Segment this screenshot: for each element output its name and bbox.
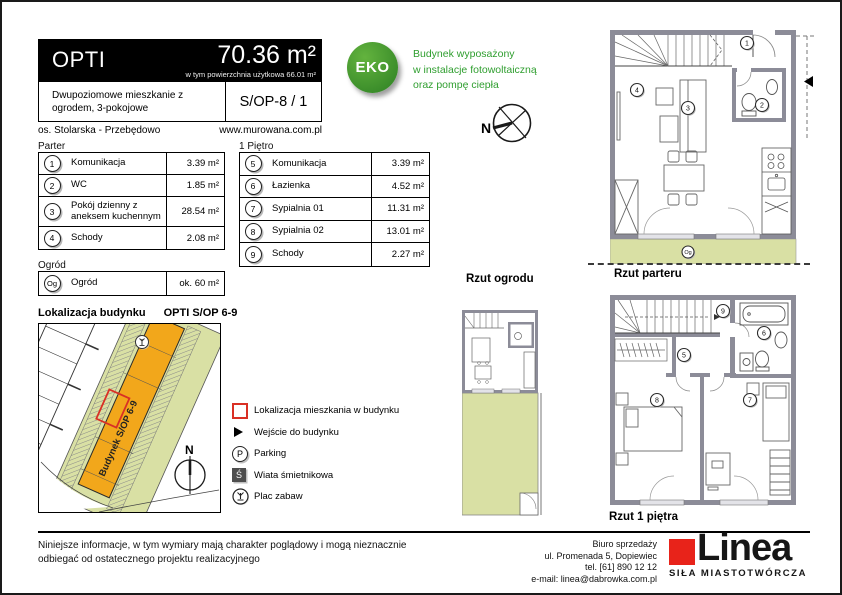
room-name: Pokój dzienny z aneksem kuchennym [65,201,166,222]
usable-area-note: w tym powierzchnia użytkowa 66.01 m² [186,70,316,79]
ogrod-table: Og Ogród ok. 60 m² [38,271,225,296]
room-marker: 2 [760,102,764,109]
room-number-badge: 4 [44,230,61,247]
apartment-type-name: OPTI [52,47,105,73]
legend-label: Lokalizacja mieszkania w budynku [254,405,399,416]
site-plan-subtitle: OPTI S/OP 6-9 [164,307,238,319]
room-number-badge: Og [44,275,61,292]
contact-line: ul. Promenada 5, Dopiewiec [432,551,657,563]
ogrod-table-title: Ogród [38,260,66,271]
room-number-badge: 3 [44,203,61,220]
window [640,500,684,505]
site-plan-map: Budynek S/OP 6-9 N [38,323,221,513]
disclaimer-line: Niniejsze informacje, w tym wymiary mają… [38,539,406,553]
room-area: ok. 60 m² [166,272,224,295]
room-area: 11.31 m² [371,198,429,220]
footer-divider [38,531,810,533]
room-area: 13.01 m² [371,221,429,243]
room-name: Sypialnia 01 [266,204,371,215]
room-area: 2.27 m² [371,243,429,266]
section-cut-line [588,263,810,265]
table-row: 5 Komunikacja 3.39 m² [240,153,429,176]
table-row: 2 WC 1.85 m² [39,175,224,197]
apartment-description: Dwupoziomowe mieszkanie z ogrodem, 3-pok… [39,82,226,121]
linea-logo-red-square [669,539,695,565]
wc-room [732,68,786,122]
table-row: 6 Łazienka 4.52 m² [240,176,429,199]
eko-badge-label: EKO [355,59,389,76]
room-marker: 9 [721,308,725,315]
room-area: 2.08 m² [166,227,224,249]
table-row: 8 Sypialnia 02 13.01 m² [240,221,429,244]
compass-n-label: N [481,120,491,136]
legend-label: Parking [254,448,286,459]
table-row: 7 Sypialnia 01 11.31 m² [240,198,429,221]
compass-n-label: N [185,443,194,457]
parter-table: 1 Komunikacja 3.39 m² 2 WC 1.85 m² 3 Pok… [38,152,225,250]
table-row: Og Ogród ok. 60 m² [39,272,224,295]
garden-strip [610,239,796,264]
trash-shed-icon: Ś [232,468,246,482]
first-floor-plan: 9 6 5 8 7 [610,295,800,507]
legend-item: Lokalizacja mieszkania w budynku [232,400,422,422]
pietro-table: 5 Komunikacja 3.39 m² 6 Łazienka 4.52 m²… [239,152,430,267]
eco-line: w instalacje fotowoltaiczną [413,63,537,79]
room-marker: 8 [655,397,659,404]
garden-marker: Og [684,250,691,256]
room-name: Schody [65,233,166,244]
room-area: 3.39 m² [371,153,429,175]
ground-floor-plan: 1 2 3 4 Og [610,30,814,264]
room-area: 3.39 m² [166,153,224,174]
website-url: www.murowana.com.pl [219,125,322,136]
legend-label: Plac zabaw [254,491,303,502]
compass-site: N [175,443,205,494]
map-legend: Lokalizacja mieszkania w budynku Wejście… [232,400,422,508]
legend-label: Wiata śmietnikowa [254,470,333,481]
parter-table-title: Parter [38,141,65,152]
table-row: 9 Schody 2.27 m² [240,243,429,266]
room-marker: 3 [686,105,690,112]
table-row: 1 Komunikacja 3.39 m² [39,153,224,175]
legend-label: Wejście do budynku [254,427,339,438]
window [716,234,760,239]
entrance-arrow-icon [234,427,243,437]
estate-location: os. Stolarska - Przebędowo [38,125,160,136]
room-name: Schody [266,249,371,260]
room-name: Komunikacja [266,159,371,170]
legend-item: Ś Wiata śmietnikowa [232,465,422,487]
header-meta-row: os. Stolarska - Przebędowo www.murowana.… [38,125,322,136]
contact-phone: tel. [61] 890 12 12 [432,562,657,574]
unit-code: S/OP-8 / 1 [226,82,321,121]
garden-plan-title: Rzut ogrodu [466,273,534,285]
legend-item: Plac zabaw [232,486,422,508]
room-number-badge: 1 [44,155,61,172]
room-number-badge: 9 [245,246,262,263]
playground-icon [136,336,150,350]
playground-icon [232,488,250,506]
linea-logo-wordmark: Linea [697,529,791,567]
eko-badge: EKO [347,42,398,93]
eco-line: Budynek wyposażony [413,47,537,63]
window [502,389,520,393]
pietro-table-title: 1 Piętro [239,141,273,152]
room-name: Komunikacja [65,158,166,169]
room-number-badge: 2 [44,177,61,194]
room-name: WC [65,180,166,191]
ground-plan-title: Rzut parteru [614,268,682,280]
first-floor-plan-title: Rzut 1 piętra [609,511,678,523]
window [720,500,768,505]
kitchen [762,148,791,234]
table-row: 3 Pokój dzienny z aneksem kuchennym 28.5… [39,197,224,227]
contact-email: e-mail: linea@dabrowka.com.pl [432,574,657,586]
room-marker: 1 [745,40,749,47]
room-marker: 6 [762,330,766,337]
room-marker: 4 [635,87,639,94]
linea-logo-tagline: SIŁA MIASTOTWÓRCZA [669,568,811,579]
sales-office-contact: Biuro sprzedaży ul. Promenada 5, Dopiewi… [432,539,657,585]
flyer-sheet: OPTI 70.36 m² w tym powierzchnia użytkow… [0,0,842,595]
room-number-badge: 5 [245,155,262,172]
room-marker: 5 [682,352,686,359]
parking-icon: P [232,446,248,462]
room-area: 4.52 m² [371,176,429,198]
legend-item: P Parking [232,443,422,465]
room-area: 28.54 m² [166,197,224,226]
header-black-box: OPTI 70.36 m² w tym powierzchnia użytkow… [38,39,322,81]
compass-header: N [475,98,537,150]
room-number-badge: 8 [245,223,262,240]
window [638,234,694,239]
room-name: Sypialnia 02 [266,226,371,237]
site-plan-title-text: Lokalizacja budynku [38,307,146,319]
room-number-badge: 7 [245,200,262,217]
room-marker: 7 [748,397,752,404]
room-number-badge: 6 [245,178,262,195]
room-area: 1.85 m² [166,175,224,196]
legend-item: Wejście do budynku [232,422,422,444]
site-plan-drawing: Budynek S/OP 6-9 N [39,324,220,512]
total-area: 70.36 m² [217,41,316,70]
room-name: Ogród [65,278,166,289]
table-row: 4 Schody 2.08 m² [39,227,224,249]
eco-description: Budynek wyposażony w instalacje fotowolt… [413,47,537,94]
contact-line: Biuro sprzedaży [432,539,657,551]
entrance-arrow [804,76,813,87]
garden-plan-drawing [462,310,542,517]
garden-plan-building [462,310,538,393]
eco-line: oraz pompę ciepła [413,78,537,94]
footer-disclaimer: Niniejsze informacje, w tym wymiary mają… [38,539,406,567]
header-description-row: Dwupoziomowe mieszkanie z ogrodem, 3-pok… [38,81,322,122]
site-plan-title: Lokalizacja budynkuOPTI S/OP 6-9 [38,307,255,319]
window [472,389,494,393]
apartment-location-icon [232,403,248,419]
disclaimer-line: odbiegać od ostatecznego projektu realiz… [38,553,406,567]
room-name: Łazienka [266,181,371,192]
